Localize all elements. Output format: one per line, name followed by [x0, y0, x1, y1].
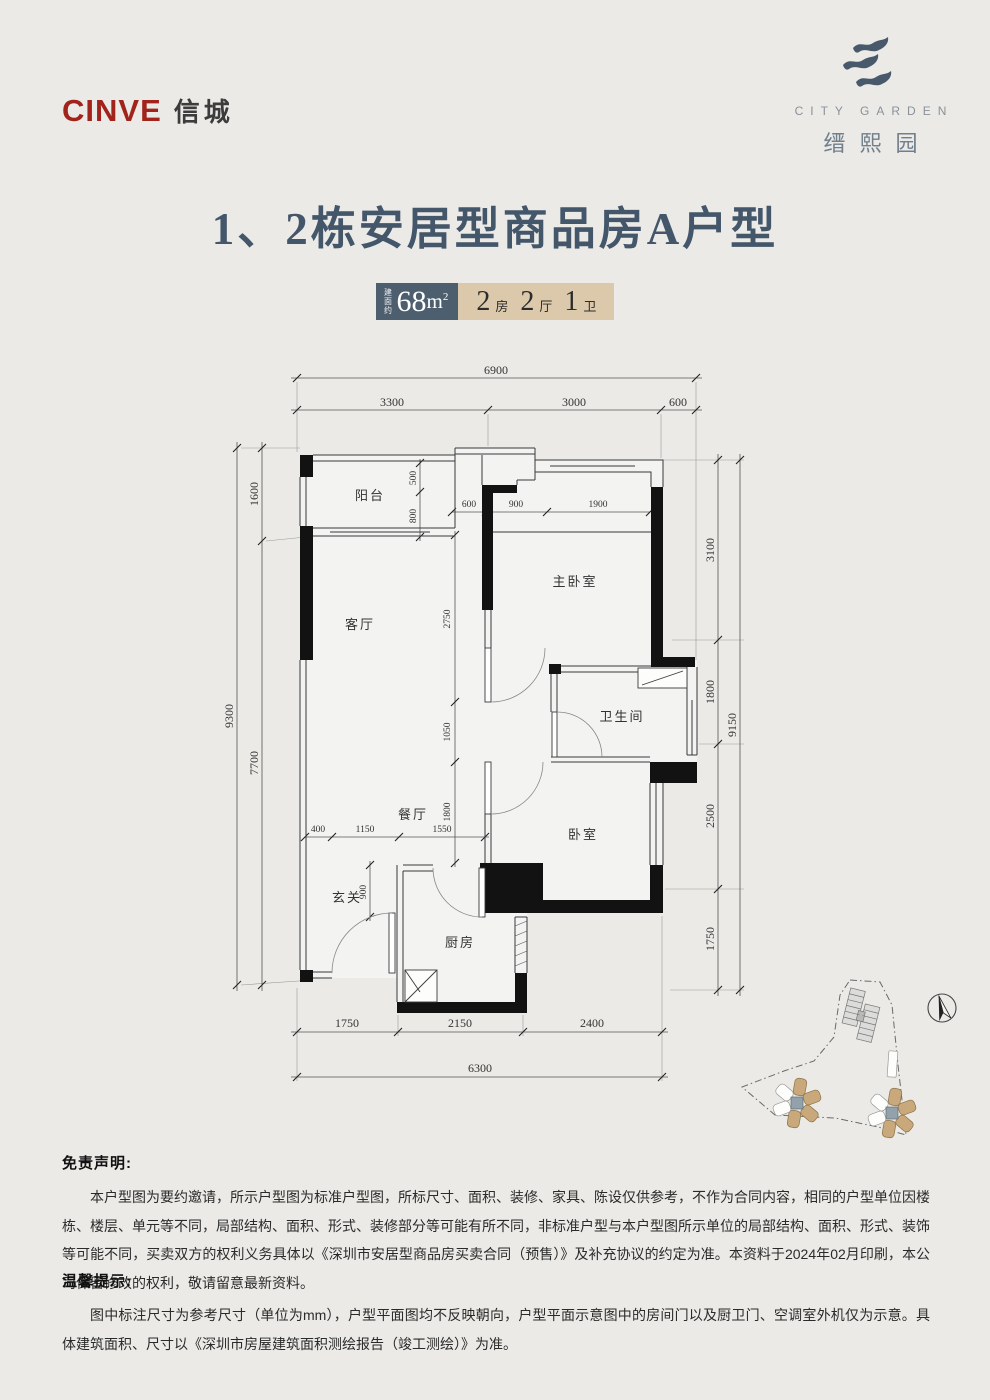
- north-arrow-icon: [928, 994, 956, 1022]
- baths-count: 1: [564, 288, 578, 316]
- master-door-leaf: [485, 648, 491, 702]
- dim-mtop-3: 1900: [589, 500, 608, 510]
- wave-logo-icon: [840, 36, 902, 94]
- dim-dining-3: 1550: [433, 825, 452, 835]
- brand-city-garden: CITY GARDEN 缙熙园: [768, 36, 973, 158]
- room-label-foyer: 玄关: [332, 890, 362, 905]
- area-badge: 建面约 68 m2: [376, 283, 459, 320]
- dim-top-1: 3300: [380, 395, 404, 409]
- brand-cinve: CINVE 信城: [62, 92, 234, 129]
- dim-bottom-3: 2400: [580, 1016, 604, 1030]
- room-label-balcony: 阳台: [355, 488, 385, 503]
- site-tower-cluster-1: [772, 1078, 822, 1129]
- room-label-living: 客厅: [345, 617, 375, 632]
- tips-title: 温馨提示:: [62, 1270, 930, 1291]
- dim-mtop-2: 900: [509, 500, 524, 510]
- dim-left-2: 7700: [247, 751, 261, 775]
- dim-center-1: 2750: [443, 609, 453, 628]
- dim-mtop-1: 600: [462, 500, 477, 510]
- area-unit: m2: [427, 291, 449, 312]
- dim-right-2: 1800: [703, 680, 717, 704]
- halls-unit: 厅: [539, 296, 552, 315]
- rooms-count: 2: [476, 288, 490, 316]
- dim-balcony-2: 800: [409, 509, 419, 524]
- unit-floor: [300, 448, 697, 1013]
- bedroom-door-leaf: [485, 762, 491, 814]
- site-buildings: [839, 988, 883, 1043]
- dim-center-2: 1050: [443, 722, 453, 741]
- kitchen-door-leaf: [479, 868, 485, 917]
- flyer-page: CINVE 信城 CITY GARDEN 缙熙园 1、2栋安居型商品房A户型 建…: [0, 0, 990, 1400]
- layout-badge: 2 房 2 厅 1 卫: [458, 283, 614, 320]
- dim-right-total: 9150: [725, 713, 739, 737]
- room-label-bath: 卫生间: [599, 709, 644, 724]
- dim-right-1: 3100: [703, 538, 717, 562]
- area-value: 68: [397, 287, 427, 317]
- site-small-block: [887, 1051, 898, 1078]
- rooms-unit: 房: [495, 296, 508, 315]
- dim-left-1: 1600: [247, 482, 261, 506]
- unit-badge: 建面约 68 m2 2 房 2 厅 1 卫: [0, 283, 990, 320]
- floorplan-drawing: 6900 3300 3000 600 9300 1600 7700 3100 1…: [220, 360, 745, 1100]
- brand-cinve-cn: 信城: [174, 92, 234, 129]
- room-label-dining: 餐厅: [398, 807, 428, 822]
- room-label-kitchen: 厨房: [445, 935, 475, 950]
- dim-balcony-1: 500: [409, 471, 419, 486]
- room-label-bedroom: 卧室: [568, 827, 598, 842]
- dim-top-total: 6900: [484, 363, 508, 377]
- dim-top-3: 600: [669, 395, 687, 409]
- dim-right-3: 2500: [703, 804, 717, 828]
- dim-right-4: 1750: [703, 927, 717, 951]
- brand-city-garden-cn: 缙熙园: [768, 126, 973, 158]
- dim-bottom-total: 6300: [468, 1061, 492, 1075]
- tips-body: 图中标注尺寸为参考尺寸（单位为mm），户型平面图均不反映朝向，户型平面示意图中的…: [62, 1301, 930, 1358]
- disclaimer-title: 免责声明:: [62, 1152, 930, 1173]
- dim-left-total: 9300: [222, 704, 236, 728]
- dim-bottom-1: 1750: [335, 1016, 359, 1030]
- entry-door-leaf: [389, 913, 395, 973]
- brand-cinve-en: CINVE: [62, 93, 162, 129]
- dim-bottom-2: 2150: [448, 1016, 472, 1030]
- dim-center-3: 1800: [443, 802, 453, 821]
- dim-top-2: 3000: [562, 395, 586, 409]
- bath-door-leaf: [552, 712, 557, 757]
- site-tower-cluster-2: [867, 1088, 917, 1139]
- site-plan: [740, 975, 990, 1150]
- baths-unit: 卫: [583, 296, 596, 315]
- brand-city-garden-en: CITY GARDEN: [768, 104, 973, 118]
- area-prefix: 建面约: [384, 288, 392, 315]
- room-label-master: 主卧室: [552, 574, 597, 589]
- halls-count: 2: [520, 288, 534, 316]
- page-title: 1、2栋安居型商品房A户型: [0, 192, 990, 257]
- dim-dining-2: 1150: [356, 825, 375, 835]
- tips-section: 温馨提示: 图中标注尺寸为参考尺寸（单位为mm），户型平面图均不反映朝向，户型平…: [62, 1270, 930, 1358]
- dim-dining-1: 400: [311, 825, 326, 835]
